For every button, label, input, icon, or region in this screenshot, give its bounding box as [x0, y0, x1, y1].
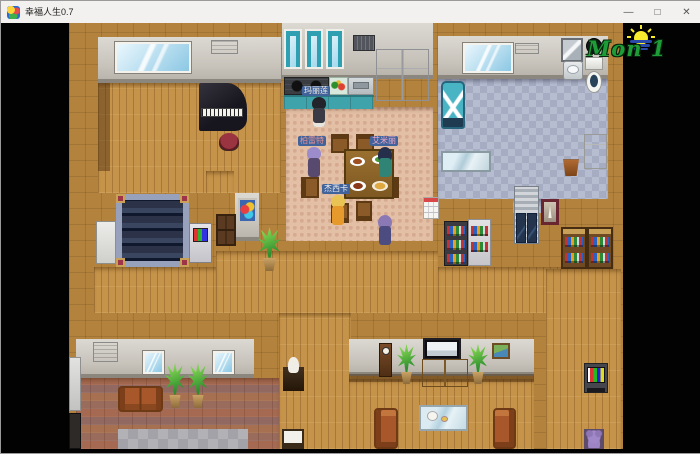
- staircase: [116, 194, 189, 267]
- washing-machine: [584, 134, 607, 169]
- elevator-door: [514, 186, 539, 244]
- character-diner-right[interactable]: [375, 147, 395, 179]
- kitchen-window: [305, 29, 323, 69]
- music-room-window: [115, 42, 191, 73]
- wall-calendar: [423, 197, 439, 219]
- music-room-wall-shadow: [98, 83, 110, 171]
- bookshelf-top: [563, 229, 585, 234]
- living-room-ac-unit: [93, 342, 118, 362]
- portrait-figure: [547, 206, 552, 219]
- character-body: [313, 108, 325, 127]
- teapot: [427, 411, 438, 421]
- shelf-items: [471, 226, 488, 236]
- maximize-button[interactable]: □: [643, 1, 672, 23]
- side-table: [282, 429, 304, 449]
- wall-tv: [423, 338, 461, 360]
- window-controls: — □ ✕: [614, 1, 700, 23]
- plant-pot: [472, 372, 483, 384]
- character-cook[interactable]: [309, 97, 329, 129]
- sink-bowl: [567, 65, 579, 74]
- stair-corner: [180, 258, 189, 267]
- nametag-cook: 玛丽莲: [302, 86, 330, 96]
- wall-clock: [379, 343, 392, 377]
- living-room-window: [213, 351, 234, 374]
- arcade-machine: [189, 223, 212, 263]
- character-diner-left[interactable]: [304, 147, 324, 179]
- hallway-floor-center: [216, 251, 438, 313]
- plant-pot: [263, 258, 276, 271]
- nametag-diner-left: 柏雷特: [298, 136, 326, 146]
- corridor-floor: [546, 269, 621, 449]
- bathroom-mirror: [561, 38, 583, 62]
- title-bar[interactable]: 幸福人生0.7 — □ ✕: [1, 1, 700, 23]
- white-cabinet: [96, 221, 116, 264]
- piano-stool: [219, 133, 239, 151]
- shelf-items: [447, 240, 465, 250]
- stair-corner: [180, 194, 189, 203]
- book-row: [591, 253, 609, 263]
- bathroom-sink: [563, 61, 583, 80]
- window-title: 幸福人生0.7: [25, 1, 74, 23]
- app-icon: [7, 6, 20, 19]
- music-room-vent: [211, 40, 238, 54]
- stair-corner: [116, 258, 125, 267]
- game-map[interactable]: 玛丽莲 柏雷特 艾米丽 杰西卡: [69, 23, 623, 449]
- potted-plant: [468, 344, 488, 384]
- clay-pot: [563, 157, 579, 176]
- bust-statue: [283, 367, 304, 391]
- kitchen-sink: [348, 77, 374, 95]
- plant-leaves: [165, 363, 185, 395]
- grand-piano: [199, 83, 247, 131]
- character-diner-bottom[interactable]: [328, 195, 348, 227]
- crt-stand: [587, 388, 605, 392]
- plant-pot: [192, 395, 203, 409]
- wooden-door: [216, 214, 236, 246]
- shelf-items: [447, 226, 465, 236]
- potted-plant: [258, 227, 281, 271]
- entrance-tiles: [118, 429, 248, 449]
- toilet: [585, 57, 603, 97]
- sofa: [118, 386, 163, 412]
- portrait-painting: [541, 199, 559, 225]
- plant-leaves: [397, 344, 416, 372]
- character-body: [379, 158, 391, 177]
- potted-plant: [165, 363, 185, 408]
- food-plate: [350, 181, 366, 191]
- coffee-table: [419, 405, 468, 431]
- toilet-bowl: [586, 71, 602, 93]
- sink-basin: [353, 82, 369, 89]
- kitchen-window: [284, 29, 302, 69]
- side-door: [69, 357, 81, 411]
- app-window: 幸福人生0.7 — □ ✕: [0, 0, 700, 454]
- close-button[interactable]: ✕: [672, 1, 700, 23]
- kitchen-window: [326, 29, 344, 69]
- bookshelf-top: [589, 229, 611, 234]
- crt-tv: [584, 363, 608, 393]
- food-plate: [350, 157, 365, 166]
- food-plate: [372, 181, 388, 191]
- clock-face: [382, 347, 390, 355]
- armchair: [493, 408, 516, 449]
- arcade-screen: [193, 228, 208, 242]
- bust-head: [288, 357, 299, 373]
- piano-keys: [201, 108, 243, 117]
- dining-chair: [301, 177, 319, 198]
- music-room-floor: [98, 83, 281, 193]
- picture-frame: [492, 343, 510, 359]
- potted-plant: [397, 344, 416, 384]
- tv-cabinet: [422, 359, 468, 387]
- minimize-button[interactable]: —: [614, 1, 643, 23]
- elevator-door-right: [527, 213, 537, 243]
- character-body: [379, 226, 391, 245]
- nametag-diner-right: 艾米丽: [370, 136, 398, 146]
- table-cloth: [284, 431, 302, 443]
- living-room-window: [143, 351, 164, 374]
- dark-cabinet: [69, 413, 81, 449]
- music-room-doorway: [206, 171, 234, 193]
- plant-pot: [401, 372, 412, 384]
- book-row: [591, 237, 609, 247]
- bathtub: [441, 81, 465, 129]
- plant-pot: [169, 395, 180, 409]
- character-body: [308, 158, 320, 177]
- stair-corner: [116, 194, 125, 203]
- bookshelf: [561, 227, 587, 269]
- shelf-items: [471, 242, 488, 252]
- kitchen-counter-front: [284, 95, 374, 109]
- character-body: [332, 206, 344, 225]
- beverage-shelf: [468, 219, 491, 266]
- kitchen-counter-vegetables: [329, 77, 348, 95]
- teacup: [441, 416, 448, 422]
- plant-leaves: [468, 344, 488, 372]
- abstract-painting: [238, 198, 257, 223]
- hallway-floor-left: [94, 267, 216, 313]
- nametag-diner-bottom: 杰西卡: [322, 184, 350, 194]
- kitchen-ac-unit: [353, 35, 375, 51]
- plant-leaves: [258, 227, 281, 258]
- refrigerators: [376, 49, 429, 101]
- potted-plant: [188, 363, 208, 408]
- plant-leaves: [188, 363, 208, 395]
- shelf-items: [447, 254, 465, 264]
- book-row: [565, 253, 583, 263]
- game-viewport: 玛丽莲 柏雷特 艾米丽 杰西卡 Mon 1: [1, 23, 700, 453]
- character-walker[interactable]: [375, 215, 395, 247]
- bath-bench: [441, 151, 491, 172]
- bathroom-vent: [515, 43, 539, 54]
- dining-chair: [356, 201, 372, 221]
- crt-screen: [587, 367, 605, 383]
- day-indicator: Mon 1: [587, 36, 666, 61]
- teddy-bear: [585, 430, 603, 448]
- bookshelf: [587, 227, 613, 269]
- tv-screen: [427, 342, 457, 356]
- elevator-door-left: [516, 213, 526, 243]
- display-shelf: [444, 221, 468, 266]
- book-row: [565, 237, 583, 247]
- armchair: [374, 408, 398, 449]
- teddy-bear-tile: [584, 429, 604, 449]
- bathroom-window: [463, 43, 513, 73]
